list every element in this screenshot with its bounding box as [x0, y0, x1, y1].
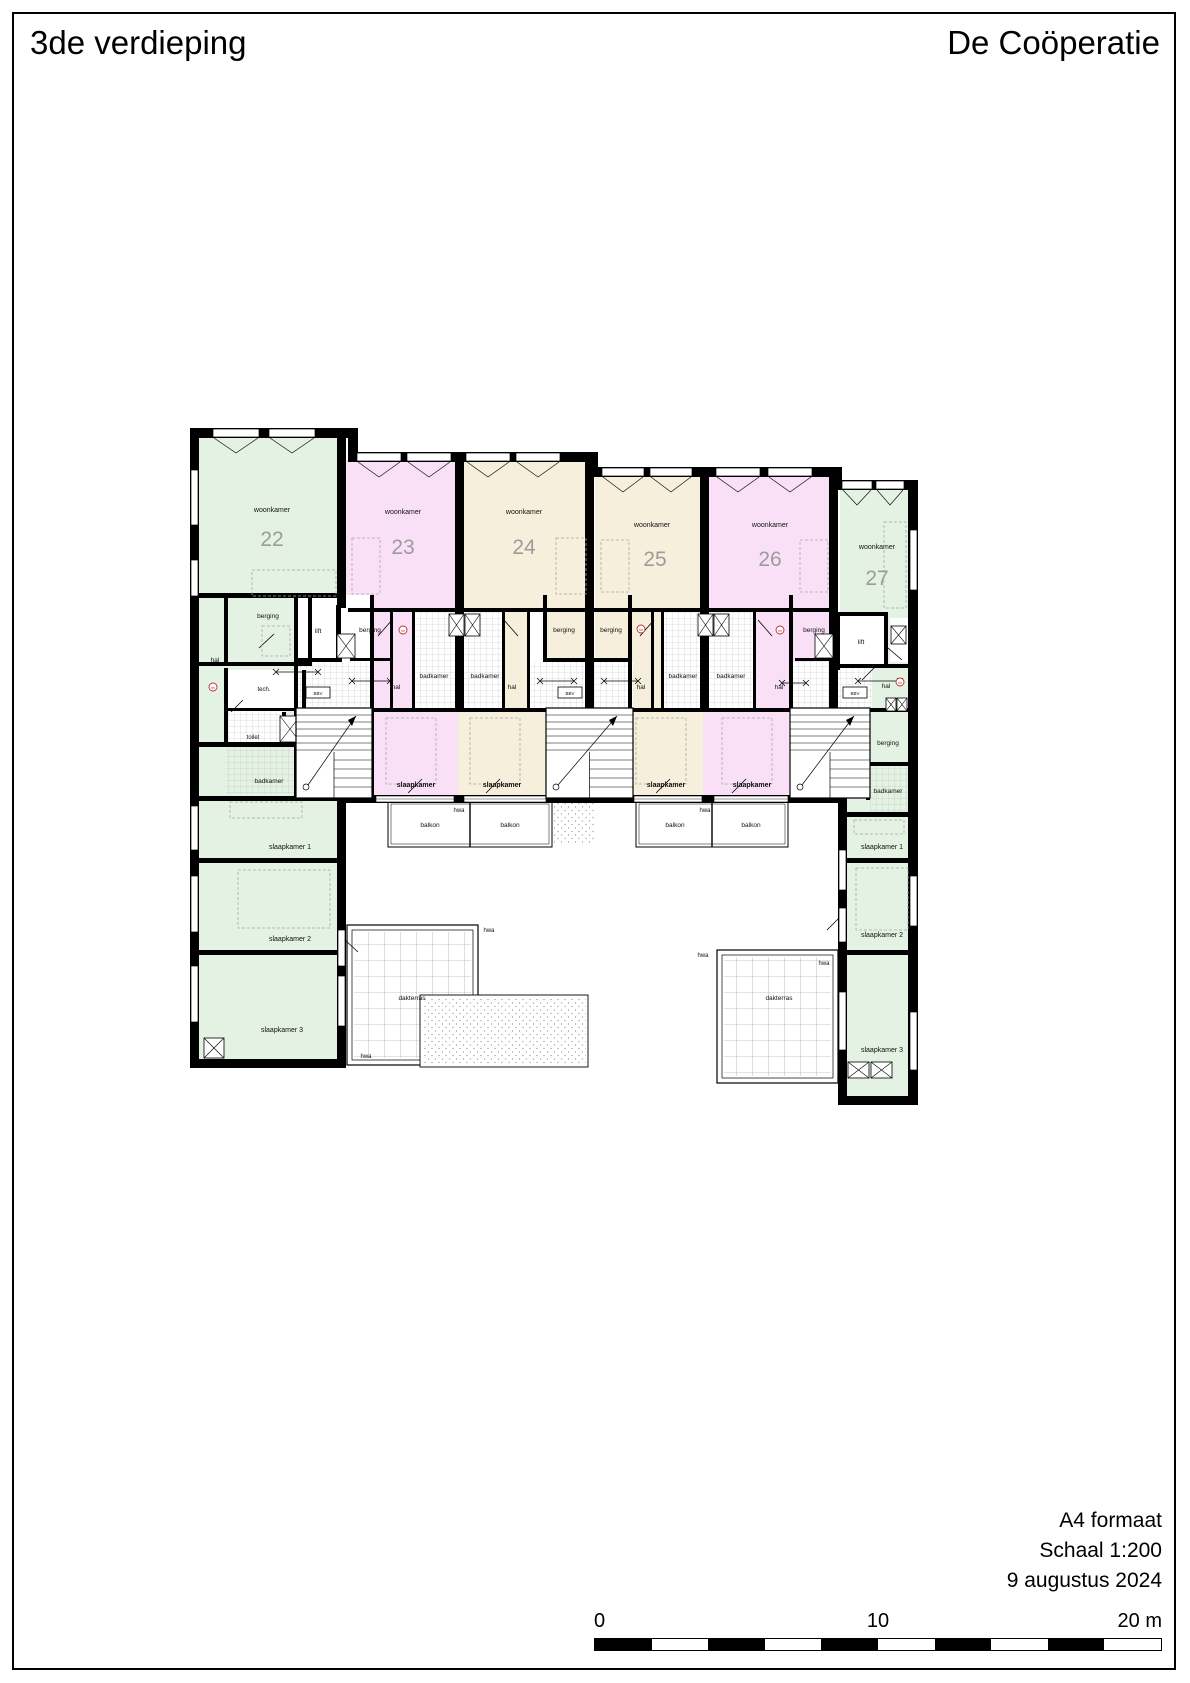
scale-segment: [935, 1639, 992, 1650]
wall: [884, 614, 888, 668]
room-label: badkamer: [255, 778, 285, 785]
window: [839, 850, 846, 890]
window: [516, 453, 560, 461]
window: [191, 876, 198, 932]
floorplan-drawing: woonkamerwoonkamerwoonkamerwoonkamerwoon…: [0, 0, 1190, 1683]
wall: [836, 612, 888, 616]
scale-segment: [1048, 1639, 1105, 1650]
window: [191, 560, 198, 596]
room-label: slaapkamer: [733, 782, 772, 789]
room-label: berging: [257, 613, 279, 620]
tiled-floor: [296, 662, 372, 706]
room-label: woonkamer: [384, 509, 422, 516]
room-label: woonkamer: [751, 522, 789, 529]
gravel-texture: [422, 997, 586, 1065]
room-label: slaapkamer 1: [861, 844, 903, 851]
room-label: rm: [401, 629, 405, 633]
room-label: hwa: [453, 808, 465, 814]
room-label: hwa: [818, 961, 830, 967]
wall: [197, 950, 342, 955]
window: [466, 453, 510, 461]
room-label: balkon: [665, 822, 685, 829]
room-label: hal: [775, 684, 784, 691]
room-label: balkon: [741, 822, 761, 829]
wall: [197, 858, 342, 863]
room-label: hwa: [697, 953, 709, 959]
room-label: slaapkamer: [397, 782, 436, 789]
room-label: badkamer: [471, 673, 501, 680]
room-label: balkon: [500, 822, 520, 829]
window: [876, 481, 904, 489]
room-label: hal: [211, 657, 220, 664]
wall: [294, 658, 342, 662]
window: [338, 930, 345, 966]
wall: [190, 593, 342, 598]
wall: [412, 612, 415, 710]
wall: [836, 612, 840, 670]
window: [650, 468, 692, 476]
room-label: hal: [637, 684, 646, 691]
window: [716, 468, 760, 476]
apartment-number: 22: [260, 528, 283, 551]
room-label: BBV: [850, 691, 859, 696]
window: [910, 876, 917, 926]
window: [357, 453, 401, 461]
room-label: BBV: [565, 691, 574, 696]
window: [407, 453, 451, 461]
scale-segment: [1104, 1639, 1161, 1650]
wall: [224, 708, 302, 711]
room-label: slaapkamer: [647, 782, 686, 789]
wall: [308, 598, 312, 664]
wall: [651, 612, 654, 710]
room-label: badkamer: [717, 673, 747, 680]
room-label: lift: [315, 628, 322, 635]
scale-segment: [991, 1639, 1048, 1650]
room-label: hal: [508, 684, 517, 691]
apartment-number: 27: [865, 567, 888, 590]
scale-bar-labels: 0 10 20 m: [594, 1610, 1162, 1638]
scale-tick-20: 20 m: [1118, 1610, 1162, 1633]
room-label: berging: [600, 627, 622, 634]
room-label: woonkamer: [253, 507, 291, 514]
scale-segment: [878, 1639, 935, 1650]
room-label: BBV: [313, 691, 322, 696]
wall: [843, 858, 910, 863]
balconies-terraces: [347, 801, 838, 1083]
room-label: woonkamer: [633, 522, 671, 529]
room-label: rm: [778, 629, 782, 633]
scale-segment: [595, 1639, 652, 1650]
room-label: dakterras: [398, 995, 426, 1002]
window: [910, 530, 917, 590]
room-label: hwa: [483, 928, 495, 934]
scale-segment: [765, 1639, 822, 1650]
title-block: A4 formaat Schaal 1:200 9 augustus 2024: [1007, 1506, 1162, 1596]
window: [191, 806, 198, 850]
room-label: badkamer: [669, 673, 699, 680]
room-label: hwa: [699, 808, 711, 814]
drawing-sheet: 3de verdieping De Coöperatie woonkamerwo…: [0, 0, 1190, 1683]
scale-bar-segments: [594, 1638, 1162, 1651]
wall: [348, 608, 832, 612]
room-label: hal: [882, 683, 891, 690]
room-label: badkamer: [420, 673, 450, 680]
scale-tick-0: 0: [594, 1610, 605, 1633]
wall: [829, 467, 838, 712]
room-label: slaapkamer 3: [261, 1027, 303, 1034]
wall: [190, 1059, 346, 1068]
room-label: slaapkamer 2: [861, 932, 903, 939]
door-swing: [827, 918, 839, 930]
window: [338, 976, 345, 1026]
wall: [337, 428, 346, 608]
room-label: rm: [639, 628, 643, 632]
wall: [628, 595, 632, 710]
scale-bar: 0 10 20 m: [594, 1610, 1162, 1651]
wall: [661, 612, 664, 710]
wall: [843, 812, 910, 817]
tiled-floor: [530, 662, 633, 708]
apartment-number: 25: [643, 548, 666, 571]
window: [839, 908, 846, 942]
wall: [795, 658, 833, 661]
room-label: balkon: [420, 822, 440, 829]
room-label: slaapkamer 3: [861, 1047, 903, 1054]
room-label: lift: [858, 639, 865, 646]
room-label: woonkamer: [858, 544, 896, 551]
scale-segment: [821, 1639, 878, 1650]
window: [768, 468, 812, 476]
room-label: rm: [898, 681, 902, 685]
window: [910, 1012, 917, 1070]
wall: [224, 668, 228, 746]
wall: [848, 664, 910, 668]
window: [839, 992, 846, 1050]
window: [842, 481, 872, 489]
room-label: slaapkamer 1: [269, 844, 311, 851]
room-label: rm: [211, 686, 215, 690]
window: [213, 429, 259, 437]
scale-segment: [652, 1639, 709, 1650]
scale-segment: [708, 1639, 765, 1650]
room-label: tech.: [257, 687, 270, 693]
window: [191, 966, 198, 1022]
gravel-texture: [552, 803, 594, 843]
tiled-floor: [664, 612, 703, 710]
wall: [866, 762, 910, 766]
scale-tick-10: 10: [867, 1610, 889, 1633]
window: [602, 468, 644, 476]
room-label: hwa: [360, 1054, 372, 1060]
wall: [838, 1096, 918, 1105]
roof-terrace-grid: [724, 957, 831, 1076]
room-label: berging: [359, 627, 381, 634]
room-label: berging: [877, 740, 899, 747]
wall: [753, 612, 756, 710]
room-label: slaapkamer: [483, 782, 522, 789]
wall: [585, 452, 594, 712]
room-label: toilet: [247, 735, 260, 741]
room-label: slaapkamer 2: [269, 936, 311, 943]
room-label: berging: [803, 627, 825, 634]
wall: [350, 658, 391, 661]
wall: [527, 612, 530, 710]
format-note: A4 formaat: [1007, 1506, 1162, 1536]
wall: [843, 950, 910, 955]
wall: [789, 595, 793, 710]
apartment-number: 26: [758, 548, 781, 571]
wall: [700, 467, 709, 712]
wall: [502, 612, 505, 710]
date-note: 9 augustus 2024: [1007, 1566, 1162, 1596]
room-label: woonkamer: [505, 509, 543, 516]
window: [269, 429, 315, 437]
room-label: berging: [553, 627, 575, 634]
room-label: dakterras: [765, 995, 793, 1002]
apartment-number: 24: [512, 536, 536, 559]
wall: [455, 452, 464, 712]
scale-note: Schaal 1:200: [1007, 1536, 1162, 1566]
apartment-number: 23: [391, 536, 414, 559]
window: [191, 470, 198, 525]
wall: [543, 595, 547, 662]
wall: [543, 658, 632, 662]
wall: [224, 598, 228, 664]
room-label: badkamer: [874, 788, 904, 795]
room-label: hal: [392, 684, 401, 691]
